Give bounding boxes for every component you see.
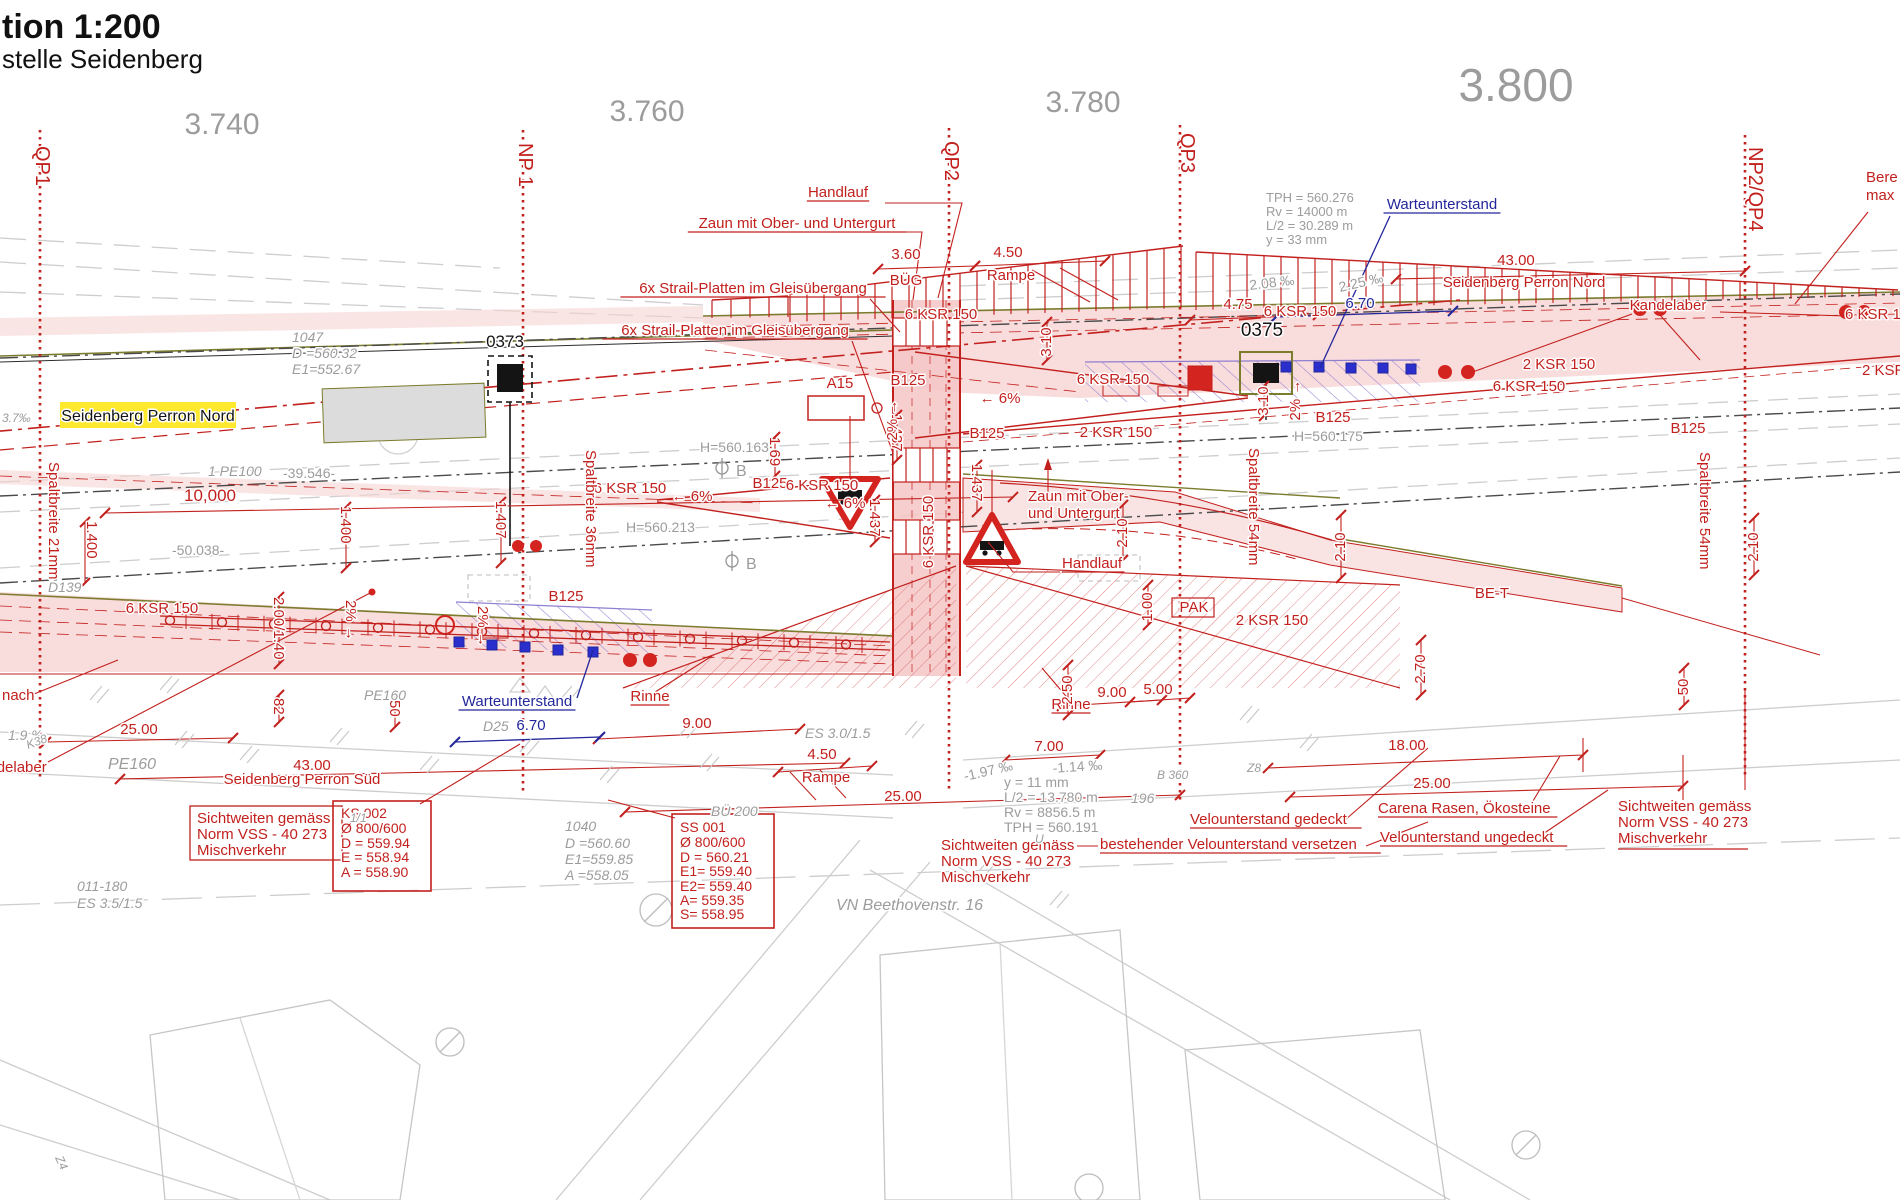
tph-top-2: Rv = 14000 m <box>1266 204 1347 219</box>
dim-1400-a: 1.400 <box>83 521 100 559</box>
dim-4300-top: 43.00 <box>1497 252 1535 269</box>
label-6ksr150-6: 6 KSR 150 <box>126 600 199 617</box>
ks002-5: A = 558.90 <box>341 864 409 880</box>
dim-900-left: 9.00 <box>682 715 711 732</box>
dim-4300-bottom: 43.00 <box>293 757 331 774</box>
dim-10000: 10,000 <box>184 486 236 505</box>
label-pak: PAK <box>1180 599 1209 616</box>
label-handlauf-2: Handlauf <box>1062 555 1123 572</box>
marker-0375-label: 0375 <box>1241 320 1283 341</box>
section-qp1: QP1 <box>31 146 53 186</box>
label-zaun-2a: Zaun mit Ober- <box>1028 488 1129 505</box>
label-velo-ungedeckt: Velounterstand ungedeckt <box>1380 829 1554 846</box>
dim-1437-b: 1.437 <box>866 499 883 537</box>
chainage-3740: 3.740 <box>184 108 259 141</box>
dim-360: 3.60 <box>891 246 920 263</box>
dim-270: 2.70 <box>1412 654 1429 683</box>
a15-sign-box <box>808 396 864 420</box>
gh-196: 196 <box>1131 790 1155 806</box>
label-zaun-1: Zaun mit Ober- und Untergurt <box>699 215 897 232</box>
tph-bot-4: TPH = 560.191 <box>1004 819 1099 835</box>
section-np2qp4: NP2/QP4 <box>1744 147 1766 231</box>
section-qp2: QP2 <box>940 141 962 181</box>
sicht-mid-1: Sichtweiten gemäss <box>941 837 1074 854</box>
sicht-mid-3: Mischverkehr <box>941 869 1030 886</box>
dim-200-140: 2.00/1.40 <box>270 597 287 660</box>
label-rampe-2: Rampe <box>802 769 850 786</box>
sicht-left-2: Norm VSS - 40 273 <box>197 826 327 843</box>
gh-b360: B 360 <box>1157 768 1189 782</box>
dim-1400-b: 1.400 <box>337 506 354 544</box>
label-bereich-2: max <box>1866 187 1895 204</box>
section-qp3: QP3 <box>1176 133 1198 173</box>
gh-pe160-a: PE160 <box>108 756 156 773</box>
gh-39546: -39.546- <box>283 465 335 481</box>
gh-pe100: 1 PE100 <box>208 463 262 479</box>
label-perron-nord-red: Seidenberg Perron Nord <box>1443 274 1606 291</box>
ghost-1047-2: D =560.32 <box>292 345 357 361</box>
sicht-right-2: Norm VSS - 40 273 <box>1618 814 1748 831</box>
gh-225: 2.25 ‰ <box>1337 269 1385 295</box>
label-6ksr150-2: 6 KSR 150 <box>1077 371 1150 388</box>
label-2ksr150-4: 2 KSR 150 <box>1236 612 1309 629</box>
ss001-1: SS 001 <box>680 819 726 835</box>
slope-6pct-c: ← 6% <box>825 495 866 512</box>
dim-82: 82 <box>270 698 287 715</box>
gh-50038: -50.038- <box>172 542 224 558</box>
dim-2500-left: 25.00 <box>120 721 158 738</box>
label-b125-5: B125 <box>548 588 583 605</box>
gh-z4: Z4 <box>52 1152 71 1172</box>
gh-es35: ES 3.5/1.5 <box>77 895 143 911</box>
dim-450-top: 4.50 <box>993 244 1022 261</box>
gh-d25: D25 <box>483 718 509 734</box>
dim-210-b: 2.10 <box>1332 532 1349 561</box>
label-rinne-1: Rinne <box>630 688 669 705</box>
slope-2pct-b: 2% → <box>1287 380 1304 421</box>
gh-011180: 011-180 <box>77 878 128 894</box>
dim-1407: 1.407 <box>492 501 509 539</box>
tph-top-3: L/2 = 30.289 m <box>1266 218 1353 233</box>
label-warteunterstand-top: Warteunterstand <box>1387 196 1497 213</box>
tph-bot-2: L/2 = 13.780 m <box>1004 789 1098 805</box>
dim-670-bottom: 6.70 <box>516 717 545 734</box>
gh-bue200: BÜ 200 <box>711 802 758 819</box>
red-signal-box <box>1188 366 1212 390</box>
dim-1800: 18.00 <box>1388 737 1426 754</box>
label-spaltbreite-36: Spaltbreite 36mm <box>582 450 599 568</box>
label-b125-6: B125 <box>752 475 787 492</box>
label-warteunterstand-bottom: Warteunterstand <box>462 693 572 710</box>
gh-11: 1/1 <box>350 811 367 825</box>
section-np1: NP 1 <box>514 143 536 187</box>
gh-208: 2.08 ‰ <box>1248 272 1295 293</box>
ghost-1040-2: D =560.60 <box>565 835 630 851</box>
label-spaltbreite-54b: Spaltbreite 54mm <box>1696 452 1713 570</box>
label-bet: BE-T <box>1475 585 1509 602</box>
dim-250: 2.50 <box>1059 675 1076 704</box>
gh-b-marker-2: B <box>746 556 757 573</box>
dim-310-a: 3.10 <box>1038 327 1055 356</box>
plan-subtitle: stelle Seidenberg <box>2 44 203 74</box>
slope-2pct-c: 2% → <box>342 600 359 641</box>
plan-title: tion 1:200 <box>2 8 161 46</box>
label-handlauf-1: Handlauf <box>808 184 869 201</box>
dim-50-right: 50 <box>1675 679 1692 696</box>
marker-0373-label: 0373 <box>486 332 524 351</box>
ks002-4: E = 558.94 <box>341 849 409 865</box>
tph-top-4: y = 33 mm <box>1266 232 1327 247</box>
building-top <box>322 383 486 443</box>
label-rampe-1: Rampe <box>987 267 1035 284</box>
label-6ksr150-1: 6 KSR 150 <box>905 306 978 323</box>
dim-100: 1.00 <box>1139 592 1156 621</box>
label-6ksr150-vert: 6 KSR 150 <box>920 496 937 569</box>
gh-37: 3.7‰ <box>2 411 31 425</box>
sicht-right-3: Mischverkehr <box>1618 830 1707 847</box>
chainage-3800: 3.800 <box>1458 59 1573 111</box>
label-spaltbreite-54a: Spaltbreite 54mm <box>1245 448 1262 566</box>
dim-475: 4.75 <box>1223 296 1252 313</box>
chainage-3780: 3.780 <box>1045 86 1120 119</box>
label-velo-versetzen: bestehender Velounterstand versetzen <box>1100 836 1357 853</box>
label-6ksr150-8: 6 KSR 150 <box>786 477 859 494</box>
ss001-7: S= 558.95 <box>680 906 744 922</box>
label-perron-nord-yellow: Seidenberg Perron Nord <box>61 408 234 425</box>
gh-u: U <box>1035 832 1044 846</box>
label-6ksr150-4: 6 KSR 150 <box>1493 378 1566 395</box>
label-nach: nach <box>2 687 35 704</box>
tph-top-1: TPH = 560.276 <box>1266 190 1354 205</box>
slope-2pct-a: 2% → <box>884 400 901 441</box>
label-2ksr150-1: 2 KSR 150 <box>1080 424 1153 441</box>
north-rail-strip <box>0 306 703 336</box>
label-strail-1: 6x Strail-Platten im Gleisübergang <box>639 280 867 297</box>
dim-670-top: 6.70 <box>1345 295 1374 312</box>
dim-900-right: 9.00 <box>1097 684 1126 701</box>
slope-2pct-d: 2% → <box>474 606 491 647</box>
slope-6pct-a: ← 6% <box>980 390 1021 407</box>
gh-h560163: H=560.163 <box>700 439 769 455</box>
label-6ksr150-3: 6 KSR 150 <box>1264 303 1337 320</box>
title-block: tion 1:200 stelle Seidenberg <box>2 8 203 74</box>
gh-b-marker-1: B <box>736 463 747 480</box>
label-kandelaber-right: Kandelaber <box>1630 297 1707 314</box>
ss001-2: Ø 800/600 <box>680 834 746 850</box>
label-2ksr150-3: 2 KSR 150 <box>1862 362 1900 379</box>
tph-bot-1: y = 11 mm <box>1004 774 1069 790</box>
label-b125-1: B125 <box>890 372 925 389</box>
dim-2500-right: 25.00 <box>1413 775 1451 792</box>
dim-700: 7.00 <box>1034 738 1063 755</box>
sicht-mid-2: Norm VSS - 40 273 <box>941 853 1071 870</box>
gh-es30: ES 3.0/1.5 <box>805 725 871 741</box>
dim-1437-c: 1.437 <box>968 464 985 502</box>
ghost-1040-4: A =558.05 <box>564 867 629 883</box>
slope-6pct-b: ← 6% <box>672 488 713 505</box>
gh-h560175: H=560.175 <box>1294 428 1363 444</box>
sicht-left-3: Mischverkehr <box>197 842 286 859</box>
label-b125-4: B125 <box>1670 420 1705 437</box>
site-plan-canvas: 3.7403.7603.7803.800QP1NP 1QP2QP3NP2/QP4… <box>0 0 1900 1200</box>
sicht-left-1: Sichtweiten gemäss <box>197 810 330 827</box>
gh-beethovenstr: VN Beethovenstr. 16 <box>836 897 983 914</box>
label-b125-2: B125 <box>969 425 1004 442</box>
ghost-1040-1: 1040 <box>565 818 596 834</box>
dim-500: 5.00 <box>1143 681 1172 698</box>
label-6ksr150-7: 6 KSR 150 <box>594 480 667 497</box>
label-bueg: BÜG <box>890 271 923 289</box>
label-carena: Carena Rasen, Ökosteine <box>1378 799 1551 817</box>
label-strail-2: 6x Strail-Platten im Gleisübergang <box>621 322 849 339</box>
dim-310-b: 3.10 <box>1255 386 1272 415</box>
dim-210-a: 2.10 <box>1114 518 1131 547</box>
gh-pe160-b: PE160 <box>364 687 406 703</box>
label-a15: A15 <box>827 375 854 392</box>
sicht-right-1: Sichtweiten gemäss <box>1618 798 1751 815</box>
label-velo-gedeckt: Velounterstand gedeckt <box>1190 811 1348 828</box>
dim-210-c: 2.10 <box>1745 532 1762 561</box>
dim-450-bottom: 4.50 <box>807 746 836 763</box>
gh-d139: D139 <box>48 579 82 595</box>
label-spaltbreite-21: Spaltbreite 21mm <box>45 462 62 580</box>
label-2ksr150-2: 2 KSR 150 <box>1523 356 1596 373</box>
ss001-4: E1= 559.40 <box>680 863 752 879</box>
label-6ksr150-5: 6 KSR 150 <box>1845 306 1900 323</box>
label-b125-3: B125 <box>1315 409 1350 426</box>
ghost-1047-3: E1=552.67 <box>292 361 361 377</box>
dim-2500-mid: 25.00 <box>884 788 922 805</box>
ghost-1047-1: 1047 <box>292 329 324 345</box>
gh-h560213: H=560.213 <box>626 519 695 535</box>
label-zaun-2b: und Untergurt <box>1028 505 1121 522</box>
tph-bot-3: Rv = 8856.5 m <box>1004 804 1095 820</box>
label-bereich-1: Bere <box>1866 169 1898 186</box>
chainage-3760: 3.760 <box>609 95 684 128</box>
label-kandelaber-left: Kandelaber <box>0 759 47 776</box>
ghost-1040-3: E1=559.85 <box>565 851 633 867</box>
gh-z8: Z8 <box>1246 761 1261 775</box>
